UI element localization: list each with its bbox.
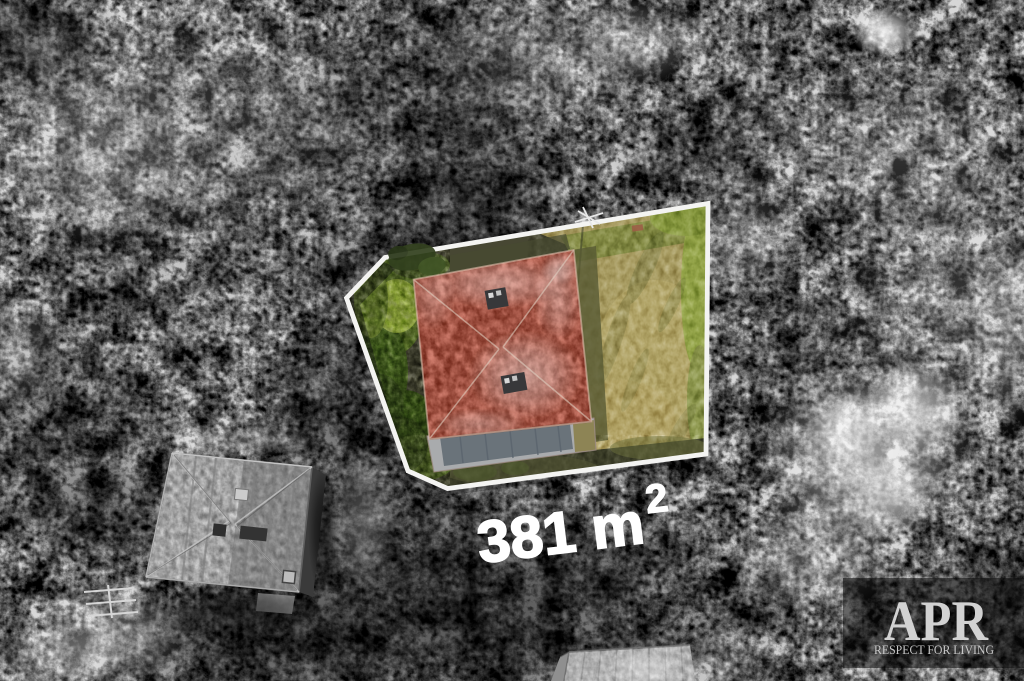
svg-text:RESPECT FOR LIVING: RESPECT FOR LIVING — [874, 642, 994, 657]
